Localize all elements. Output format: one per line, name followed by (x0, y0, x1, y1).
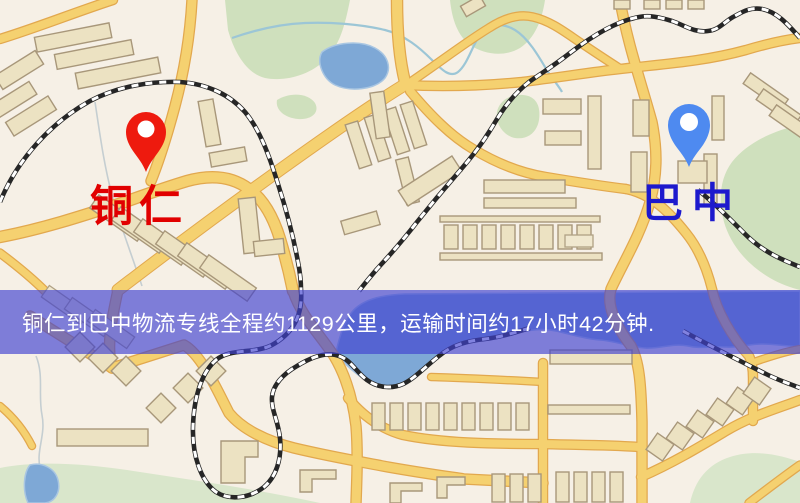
destination-pin-hole (680, 113, 698, 131)
map-screenshot: 铜仁 巴中 铜仁到巴中物流专线全程约1129公里，运输时间约17小时42分钟. (0, 0, 800, 503)
route-info-text: 铜仁到巴中物流专线全程约1129公里，运输时间约17小时42分钟. (22, 307, 655, 338)
origin-city-label: 铜仁 (90, 183, 188, 231)
route-info-banner: 铜仁到巴中物流专线全程约1129公里，运输时间约17小时42分钟. (0, 290, 800, 354)
destination-city-label: 巴中 (642, 180, 742, 226)
lake (320, 43, 389, 89)
origin-pin-hole (138, 121, 155, 138)
map-canvas[interactable]: 铜仁 巴中 (0, 0, 800, 503)
